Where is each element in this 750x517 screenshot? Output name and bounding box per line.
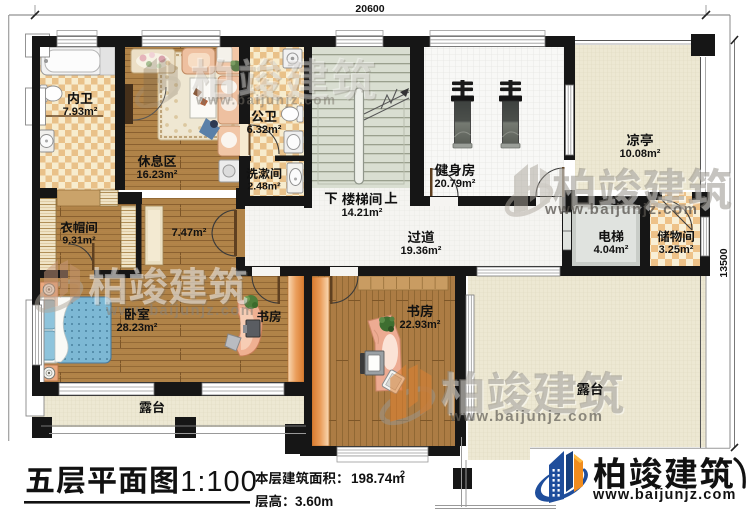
svg-text:2.48m²: 2.48m² — [247, 181, 281, 193]
svg-text:3.60m: 3.60m — [295, 494, 333, 509]
svg-text:14.21m²: 14.21m² — [342, 207, 383, 219]
svg-text:www.baijunjz.com: www.baijunjz.com — [105, 303, 255, 319]
svg-text:28.23m²: 28.23m² — [117, 322, 158, 334]
svg-text:4.04m²: 4.04m² — [594, 244, 629, 256]
svg-text:16.23m²: 16.23m² — [137, 169, 178, 181]
svg-text:7.93m²: 7.93m² — [63, 106, 98, 118]
svg-text:20.79m²: 20.79m² — [435, 178, 476, 190]
svg-text:7.47m²: 7.47m² — [172, 227, 207, 239]
svg-text:9.31m²: 9.31m² — [62, 235, 96, 247]
svg-text:13500: 13500 — [718, 248, 730, 277]
svg-text:www.baijunjz.com: www.baijunjz.com — [449, 408, 603, 425]
svg-text:www.baijunjz.com: www.baijunjz.com — [195, 93, 337, 108]
svg-text:198.74m: 198.74m — [351, 471, 404, 486]
svg-text:1:100: 1:100 — [180, 466, 258, 498]
svg-text:20600: 20600 — [355, 3, 384, 15]
svg-text:2: 2 — [400, 469, 405, 479]
svg-text:22.93m²: 22.93m² — [400, 319, 441, 331]
svg-text:19.36m²: 19.36m² — [401, 245, 442, 257]
svg-text:6.32m²: 6.32m² — [247, 124, 282, 136]
svg-text:www.baijunjz.com: www.baijunjz.com — [592, 487, 737, 503]
svg-text:3.25m²: 3.25m² — [659, 244, 694, 256]
svg-text:www.baijunjz.com: www.baijunjz.com — [544, 201, 698, 218]
svg-text:10.08m²: 10.08m² — [620, 148, 661, 160]
